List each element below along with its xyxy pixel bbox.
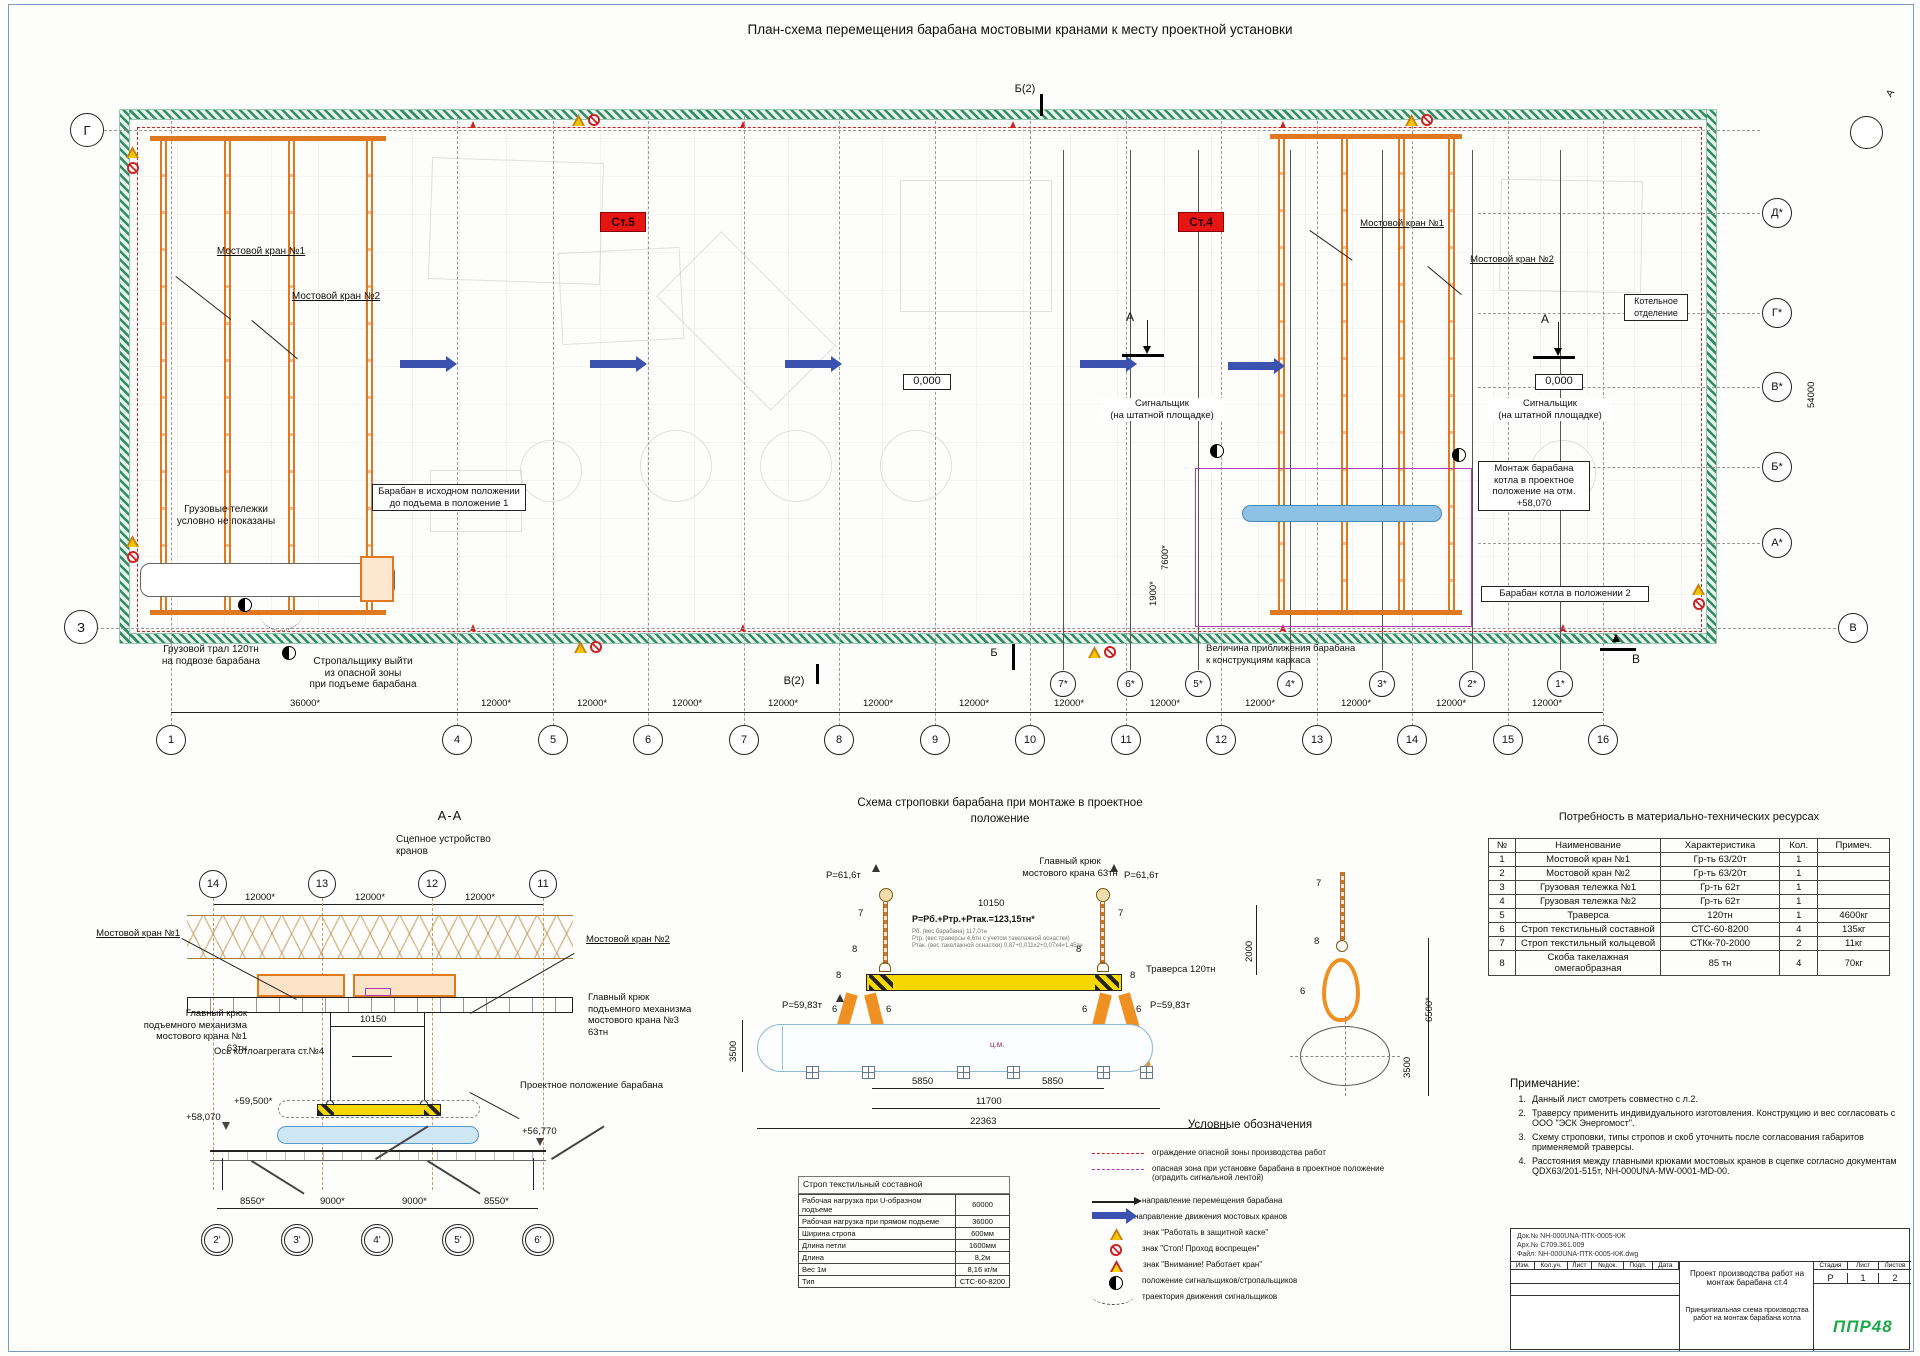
note-text: Расстояния между главными крюками мостов…	[1532, 1156, 1908, 1177]
resources-title: Потребность в материально-технических ре…	[1488, 812, 1890, 824]
cell: 85 тн	[1661, 951, 1780, 976]
boiler-axis-bubble: 4*	[1277, 671, 1303, 697]
cell: 1	[1489, 853, 1516, 867]
hook-icon	[1096, 888, 1110, 902]
col-header: Кол.	[1779, 839, 1818, 853]
traverse-beam	[866, 974, 1122, 991]
item7-left: 7	[858, 908, 863, 919]
rev-header: №док.	[1592, 1262, 1624, 1270]
support-brace	[551, 1125, 605, 1160]
section-arrow-line	[1147, 320, 1148, 346]
item6: 6	[1082, 1004, 1087, 1015]
chain-sling	[1100, 902, 1105, 964]
legend-row: знак "Внимание! Работает кран"	[1092, 1260, 1412, 1272]
aa-dim-12000: 12000*	[465, 892, 495, 903]
section-cut-line	[816, 664, 819, 684]
table-row: Вес 1м8,16 кг/м	[799, 1263, 1010, 1275]
table-row: Ширина стропа600мм	[799, 1227, 1010, 1239]
signaller-icon	[1452, 448, 1466, 462]
dim-12000: 12000*	[577, 698, 607, 709]
no-entry-sign-icon	[127, 162, 139, 174]
cell: Грузовая тележка №1	[1516, 881, 1661, 895]
col-axis-line	[1030, 116, 1031, 726]
item6-detail: 6	[1300, 986, 1305, 997]
title-block: Док.№ NH-000UNA-ПТК-0005-КЖ Арх.№ С709.3…	[1510, 1228, 1910, 1350]
support-brace	[427, 1160, 481, 1195]
dimension-line	[330, 1026, 424, 1027]
rigging-drum	[757, 1024, 1153, 1072]
p-traverse-left: P=59,83т	[782, 1000, 822, 1011]
cell: 70кг	[1818, 951, 1890, 976]
cell: 1	[1779, 895, 1818, 909]
dimension-line	[872, 1108, 1160, 1109]
col-axis-bubble: 11	[1111, 725, 1141, 755]
legend-title: Условные обозначения	[1120, 1120, 1380, 1132]
crane2-label: Мостовой кран №2	[280, 291, 392, 303]
aa-dim-12000: 12000*	[355, 892, 385, 903]
row-axis-bubble: В*	[1762, 372, 1792, 402]
crane-direction-arrow	[1080, 360, 1126, 368]
item6: 6	[886, 1004, 891, 1015]
item6: 6	[832, 1004, 837, 1015]
aa-col-bubble: 14	[199, 870, 227, 898]
cell: 135кг	[1818, 923, 1890, 937]
cell: Скоба такелажная омегаобразная	[1516, 951, 1661, 976]
col-axis-bubble: 4	[442, 725, 472, 755]
rev-header: Лист	[1568, 1262, 1592, 1270]
col-axis-bubble: 13	[1302, 725, 1332, 755]
sling-param: Длина петли	[799, 1239, 956, 1251]
signaller-label: Сигнальщик (на штатной площадке)	[1488, 398, 1612, 421]
table-row: Рабочая нагрузка при прямом подъеме36000	[799, 1215, 1010, 1227]
install-zone	[1195, 468, 1472, 627]
cell: Гр-ть 63/20т	[1661, 853, 1780, 867]
aa-dim-9000: 9000*	[320, 1196, 345, 1207]
section-arrow-line	[1558, 322, 1559, 348]
sling-param: Длина	[799, 1251, 956, 1263]
aa-bottom-bubble: 2'	[204, 1227, 230, 1253]
col-axis-bubble: 12	[1206, 725, 1236, 755]
col-axis-line	[1412, 116, 1413, 726]
row-axis-bubble: Б*	[1762, 452, 1792, 482]
support-leg	[533, 1158, 534, 1190]
crane1-label: Мостовой кран №1	[205, 246, 317, 258]
dimension-line	[213, 904, 543, 905]
legend-text: ограждение опасной зоны производства раб…	[1152, 1148, 1402, 1157]
cell: 1	[1779, 867, 1818, 881]
col-axis-line	[648, 116, 649, 726]
col-axis-bubble: 1	[156, 725, 186, 755]
view-ref-bubble	[1850, 116, 1883, 149]
stamp-divider	[1511, 1283, 1679, 1284]
cell: Гр-ть 62т	[1661, 881, 1780, 895]
boiler-axis-bubble: 2*	[1459, 671, 1485, 697]
sling-param: Ширина стропа	[799, 1227, 956, 1239]
table-row: Рабочая нагрузка при U-образном подъеме6…	[799, 1194, 1010, 1215]
col-axis-line	[1508, 116, 1509, 726]
cell: 4	[1489, 895, 1516, 909]
support-leg	[222, 1158, 223, 1190]
cell	[1818, 853, 1890, 867]
formula-note: Pб. (вес барабана) 117,0тн	[912, 929, 1132, 936]
legend-row: траектория движения сигнальщиков	[1092, 1292, 1412, 1305]
aa-crane1-label: Мостовой кран №1	[60, 928, 180, 940]
traverse-label: Траверса 120тн	[1146, 964, 1236, 976]
col-axis-line	[839, 116, 840, 726]
force-arrow	[1110, 864, 1118, 872]
legend-text: положение сигнальщиков/стропальщиков	[1142, 1276, 1392, 1285]
stamp-divider	[1511, 1295, 1679, 1296]
item7-right: 7	[1118, 908, 1123, 919]
cell: 4	[1779, 951, 1818, 976]
note-number: 1.	[1510, 1094, 1526, 1105]
dim-12000: 12000*	[959, 698, 989, 709]
item8-right: 8	[1076, 944, 1081, 955]
boiler-axis-line	[1063, 150, 1064, 670]
legend-row: направление движения мостовых кранов	[1092, 1212, 1412, 1221]
col-axis-bubble: 6	[633, 725, 663, 755]
rev-header: Подп.	[1624, 1262, 1652, 1270]
crane-direction-arrow	[1228, 362, 1274, 370]
table-row: Длина петли1600мм	[799, 1239, 1010, 1251]
legend-text: направление перемещения барабана	[1142, 1196, 1392, 1205]
sling-value: СТС-60-8200	[956, 1275, 1010, 1287]
center-of-mass: ц.м.	[990, 1040, 1005, 1049]
cell: 2	[1489, 867, 1516, 881]
row-axis-bubble: В	[1838, 613, 1868, 643]
table-row: 4Грузовая тележка №2Гр-ть 62т1	[1489, 895, 1890, 909]
col-header: Примеч.	[1818, 839, 1890, 853]
sling-value: 60000	[956, 1194, 1010, 1215]
aa-elev3: +56,770	[522, 1126, 557, 1137]
drum-initial-position	[140, 563, 395, 597]
col-axis-bubble: 9	[920, 725, 950, 755]
stage-header: Стадия	[1814, 1262, 1848, 1270]
dimension-line	[872, 1088, 1104, 1089]
stage-value: 2	[1879, 1273, 1911, 1284]
note-text: Траверсу применить индивидуального изгот…	[1532, 1108, 1908, 1129]
row-axis-line	[1478, 387, 1760, 388]
sling-value: 8,2м	[956, 1251, 1010, 1263]
rigger-exit-label: Стропальщику выйти из опасной зоны при п…	[296, 656, 430, 691]
notes-block: Примечание: 1.Данный лист смотреть совме…	[1510, 1078, 1908, 1177]
section-cut-line	[1600, 648, 1636, 651]
resources-table: № Наименование Характеристика Кол. Приме…	[1488, 838, 1890, 976]
chain-sling	[883, 902, 888, 964]
legend-symbol-zone	[1092, 1169, 1144, 1170]
boiler-axis-bubble: 5*	[1185, 671, 1211, 697]
coupling-label: Сцепное устройство кранов	[396, 834, 524, 857]
section-arrow	[1612, 634, 1620, 642]
section-marker-b2: Б(2)	[1008, 84, 1042, 96]
note-number: 3.	[1510, 1132, 1526, 1153]
load-trawl	[360, 556, 394, 602]
boiler-axis-bubble: 7*	[1050, 671, 1076, 697]
cell: 2	[1779, 937, 1818, 951]
aa-dim-12000: 12000*	[245, 892, 275, 903]
col-axis-bubble: 15	[1493, 725, 1523, 755]
legend-text: траектория движения сигнальщиков	[1142, 1292, 1392, 1301]
dim-12000: 12000*	[1436, 698, 1466, 709]
project-title: Проект производства работ на монтаж бара…	[1683, 1269, 1811, 1287]
support-brace	[251, 1160, 305, 1195]
dimension-line	[217, 1208, 538, 1209]
dim-5850: 5850	[1042, 1076, 1063, 1087]
drum-trunnion	[1097, 1066, 1110, 1079]
scheme-title: Принципиальная схема производства работ …	[1683, 1307, 1811, 1323]
dim-12000: 12000*	[672, 698, 702, 709]
hook-icon	[879, 888, 893, 902]
rev-header: Дата	[1653, 1262, 1679, 1270]
table-row: 6Строп текстильный составнойСТС-60-82004…	[1489, 923, 1890, 937]
detail-chain	[1340, 872, 1345, 940]
drum-pos2-label: Барабан котла в положении 2	[1481, 586, 1649, 602]
bridge-crane-girder	[160, 140, 167, 612]
aa-elev2: +58,070	[186, 1112, 221, 1123]
col-axis-line	[457, 116, 458, 726]
stage-value: 1	[1848, 1273, 1879, 1284]
crane1-label: Мостовой кран №1	[1352, 218, 1452, 230]
item8-left: 8	[852, 944, 857, 955]
page-title: План-схема перемещения барабана мостовым…	[640, 24, 1400, 36]
drum-end-line	[782, 1026, 783, 1070]
coupling-device	[365, 988, 391, 996]
sling-param: Вес 1м	[799, 1263, 956, 1275]
dim-12000: 12000*	[481, 698, 511, 709]
aa-bottom-bubble: 4'	[364, 1227, 390, 1253]
dim-12000: 12000*	[1245, 698, 1275, 709]
table-row: 5Траверса120тн14600кг	[1489, 909, 1890, 923]
legend-row: положение сигнальщиков/стропальщиков	[1092, 1276, 1412, 1290]
cell: 6	[1489, 923, 1516, 937]
sling-table-caption: Строп текстильный составной	[798, 1176, 1010, 1194]
crane-end-truck	[1270, 134, 1462, 139]
dim-6500: 6500*	[1424, 997, 1435, 1022]
col-axis-line	[553, 116, 554, 726]
formula: P=Pб.+Pтр.+Pтак.=123,15тн*	[912, 914, 1112, 926]
ellipse-centerline	[1345, 1016, 1346, 1096]
cell: Строп текстильный кольцевой	[1516, 937, 1661, 951]
item7-detail: 7	[1316, 878, 1321, 889]
aa-crane2-label: Мостовой кран №2	[586, 934, 696, 946]
cell: Траверса	[1516, 909, 1661, 923]
table-row: 7Строп текстильный кольцевойСТКк-70-2000…	[1489, 937, 1890, 951]
table-row: 8Скоба такелажная омегаобразная85 тн470к…	[1489, 951, 1890, 976]
elev-arrow	[536, 1138, 544, 1146]
table-row: ТипСТС-60-8200	[799, 1275, 1010, 1287]
section-marker-v2: В(2)	[776, 676, 812, 688]
stage-value: Р	[1814, 1273, 1848, 1284]
sling-param: Рабочая нагрузка при прямом подъеме	[799, 1215, 956, 1227]
dimension-line	[1256, 905, 1257, 975]
legend-row: знак "Стоп! Проход воспрещен"	[1092, 1244, 1412, 1256]
crane-direction-arrow	[590, 360, 636, 368]
cell: Грузовая тележка №2	[1516, 895, 1661, 909]
cell: Строп текстильный составной	[1516, 923, 1661, 937]
drum-trunnion	[862, 1066, 875, 1079]
crane-direction-arrow	[785, 360, 831, 368]
shackle-icon	[1097, 962, 1109, 972]
section-cut-line	[1012, 644, 1015, 670]
section-marker-a: А	[1120, 312, 1140, 324]
signaller-icon	[1210, 444, 1224, 458]
dim-3500: 3500	[728, 1041, 739, 1062]
aa-dim-9000: 9000*	[402, 1196, 427, 1207]
dimension-line	[742, 1020, 743, 1072]
col-axis-line	[744, 116, 745, 726]
cell: 120тн	[1661, 909, 1780, 923]
legend-text: знак "Стоп! Проход воспрещен"	[1142, 1244, 1392, 1253]
legend-row: ограждение опасной зоны производства раб…	[1092, 1148, 1412, 1157]
drum-initial-label: Барабан в исходном положении до подъема …	[372, 484, 526, 511]
p-hook-left: P=61,6т	[826, 870, 861, 881]
dim-5850: 5850	[912, 1076, 933, 1087]
cell: 1	[1779, 909, 1818, 923]
col-header: Наименование	[1516, 839, 1661, 853]
row-axis-line	[1478, 313, 1760, 314]
dimension-line	[171, 712, 1603, 713]
danger-zone-flag	[470, 121, 476, 128]
boiler-axis-bubble: 3*	[1369, 671, 1395, 697]
station-4-badge: Ст.4	[1178, 212, 1224, 232]
shackle-icon	[879, 962, 891, 972]
sling-table-block: Строп текстильный составной Рабочая нагр…	[798, 1176, 1010, 1288]
aa-dim-10150: 10150	[360, 1014, 386, 1025]
dim-54000: 54000	[1806, 382, 1817, 408]
row-axis-line	[1478, 213, 1760, 214]
plan-border-bottom	[120, 634, 1716, 643]
formula-note: Pтак. (вес такелажной оснастки) 0,87+0,0…	[912, 943, 1132, 950]
legend-text: знак "Работать в защитной каске"	[1143, 1228, 1393, 1237]
col-header: №	[1489, 839, 1516, 853]
cell: 8	[1489, 951, 1516, 976]
legend-row: направление перемещения барабана	[1092, 1196, 1412, 1205]
legend-symbol-trajectory	[1092, 1292, 1134, 1305]
row-axis-bubble: А*	[1762, 528, 1792, 558]
aa-dim-8550: 8550*	[240, 1196, 265, 1207]
sling-value: 36000	[956, 1215, 1010, 1227]
legend-symbol-stop	[1110, 1244, 1122, 1256]
roof-truss	[187, 915, 573, 959]
sling-value: 8,16 кг/м	[956, 1263, 1010, 1275]
row-axis-line	[104, 130, 1760, 131]
row-axis-line	[1478, 543, 1760, 544]
dim-12000: 12000*	[863, 698, 893, 709]
aa-drum-project	[277, 1126, 479, 1144]
drum-position-2	[1242, 505, 1442, 522]
aa-bottom-bubble: 6'	[525, 1227, 551, 1253]
bridge-crane-girder	[224, 140, 231, 612]
elevation-mark: 0,000	[903, 374, 951, 390]
sling-param: Тип	[799, 1275, 956, 1287]
drum-trunnion	[957, 1066, 970, 1079]
no-entry-sign-icon	[588, 114, 600, 126]
dim-3500b: 3500	[1402, 1057, 1413, 1078]
signaller-label: Сигнальщик (на штатной площадке)	[1100, 398, 1224, 421]
boiler-axis-bubble: 1*	[1547, 671, 1573, 697]
note-number: 2.	[1510, 1108, 1526, 1129]
cell: 1	[1779, 881, 1818, 895]
helmet-sign-icon	[1088, 646, 1101, 658]
legend-symbol-helmet	[1110, 1228, 1123, 1240]
no-entry-sign-icon	[127, 551, 139, 563]
item8-detail: 8	[1314, 936, 1319, 947]
dim-22363: 22363	[970, 1116, 996, 1127]
cell	[1818, 881, 1890, 895]
table-row: Длина8,2м	[799, 1251, 1010, 1263]
legend-text: знак "Внимание! Работает кран"	[1143, 1260, 1393, 1269]
dim-1900: 1900*	[1148, 581, 1159, 606]
note-text: Данный лист смотреть совместно с л.2.	[1532, 1094, 1908, 1105]
detail-sling-loop	[1322, 958, 1360, 1022]
aa-hook3-label: Главный крюк подъемного механизма мостов…	[588, 992, 713, 1038]
aa-bottom-bubble: 3'	[284, 1227, 310, 1253]
note-number: 4.	[1510, 1156, 1526, 1177]
no-entry-sign-icon	[1421, 114, 1433, 126]
boiler-axis-bubble: 6*	[1117, 671, 1143, 697]
ppr-logo: ППР48	[1833, 1317, 1893, 1337]
col-axis-line	[1603, 116, 1604, 726]
aa-elev1: +59,500*	[234, 1096, 272, 1107]
section-marker-b: Б	[984, 648, 1004, 660]
aa-col-bubble: 13	[308, 870, 336, 898]
sling-value: 1600мм	[956, 1239, 1010, 1251]
legend-symbol-drum-direction	[1092, 1201, 1134, 1203]
rev-header: Изм.	[1511, 1262, 1535, 1270]
cell: 5	[1489, 909, 1516, 923]
item6: 6	[1136, 1004, 1141, 1015]
cell	[1818, 895, 1890, 909]
doc-number-line: Файл: NH-000UNA-ПТК-0005-КЖ.dwg	[1517, 1250, 1638, 1259]
col-axis-bubble: 7	[729, 725, 759, 755]
dim-11700: 11700	[976, 1096, 1002, 1107]
sling-param: Рабочая нагрузка при U-образном подъеме	[799, 1194, 956, 1215]
cell: Гр-ть 62т	[1661, 895, 1780, 909]
col-axis-line	[1126, 116, 1127, 726]
legend-symbol-crane-direction	[1092, 1212, 1126, 1219]
sling-table: Рабочая нагрузка при U-образном подъеме6…	[798, 1194, 1010, 1288]
boiler-axis-line	[1472, 150, 1473, 670]
col-axis-bubble: 16	[1588, 725, 1618, 755]
cell: Гр-ть 63/20т	[1661, 867, 1780, 881]
bridge-crane-girder	[366, 140, 373, 612]
table-row: 3Грузовая тележка №1Гр-ть 62т1	[1489, 881, 1890, 895]
cell: 11кг	[1818, 937, 1890, 951]
signaller-icon	[238, 598, 252, 612]
cell: 4	[1779, 923, 1818, 937]
col-axis-bubble: 10	[1015, 725, 1045, 755]
dim-12000: 12000*	[1532, 698, 1562, 709]
col-axis-bubble: 5	[538, 725, 568, 755]
table-row: 2Мостовой кран №2Гр-ть 63/20т1	[1489, 867, 1890, 881]
cell: 4600кг	[1818, 909, 1890, 923]
boiler-axis-label: Ось котлоагрегата ст.№4	[214, 1046, 354, 1058]
crane-end-truck	[150, 136, 386, 141]
p-hook-right: P=61,6т	[1124, 870, 1159, 881]
section-cut-line	[1040, 94, 1043, 116]
col-axis-line	[1221, 116, 1222, 726]
plan-border-right	[1707, 110, 1716, 643]
row-axis-bubble: З	[64, 610, 98, 644]
legend-symbol-signaller	[1109, 1276, 1123, 1290]
no-entry-sign-icon	[1104, 646, 1116, 658]
detail-ring	[1336, 940, 1348, 952]
section-aa-title: А-А	[420, 810, 480, 822]
stage-header: Лист	[1848, 1262, 1879, 1270]
leader-line	[352, 1056, 392, 1057]
col-header: Характеристика	[1661, 839, 1780, 853]
cell	[1818, 867, 1890, 881]
